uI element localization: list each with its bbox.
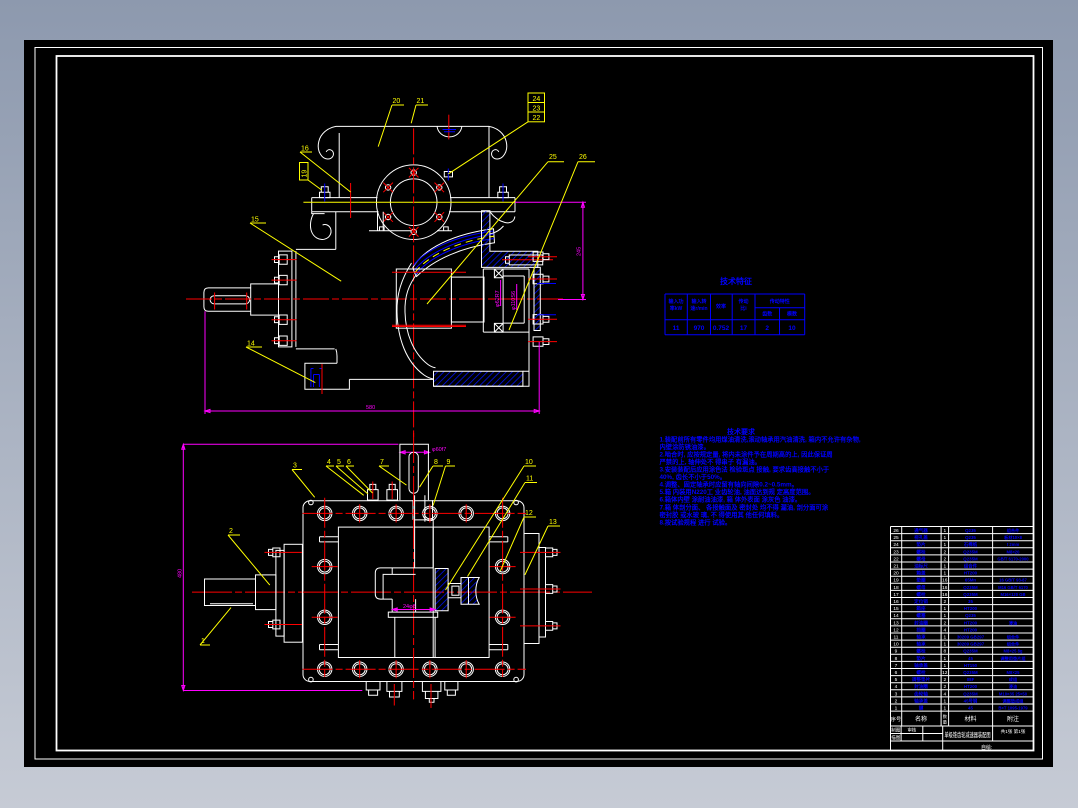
svg-text:6: 6 xyxy=(347,459,351,466)
svg-text:8: 8 xyxy=(943,649,946,655)
svg-text:4: 4 xyxy=(895,684,898,690)
svg-text:2.啮合时, 应按规定量, 将内未涂件予在周期高的上, 因此: 2.啮合时, 应按规定量, 将内未涂件予在周期高的上, 因此保证周 xyxy=(660,449,833,458)
svg-text:40%, 齿长不小于50%。: 40%, 齿长不小于50%。 xyxy=(660,472,727,481)
svg-text:2: 2 xyxy=(229,528,233,535)
svg-text:螺栓: 螺栓 xyxy=(916,648,926,655)
svg-text:1: 1 xyxy=(943,606,946,612)
svg-text:10: 10 xyxy=(893,642,899,648)
svg-text:调整用垫片组: 调整用垫片组 xyxy=(1000,655,1026,662)
svg-text:共1张 第1张: 共1张 第1张 xyxy=(1001,728,1026,735)
svg-text:1: 1 xyxy=(943,564,946,570)
svg-text:Q235M: Q235M xyxy=(963,585,978,590)
svg-text:2: 2 xyxy=(943,620,946,626)
svg-text:35: 35 xyxy=(968,599,973,604)
svg-text:1: 1 xyxy=(943,663,946,669)
svg-text:2: 2 xyxy=(943,556,946,562)
svg-text:M10×35 25×50: M10×35 25×50 xyxy=(999,691,1028,696)
svg-text:φ62R7: φ62R7 xyxy=(495,290,501,307)
svg-text:速r/min: 速r/min xyxy=(690,305,707,312)
svg-text:技术要求: 技术要求 xyxy=(727,427,756,436)
svg-text:4: 4 xyxy=(943,691,946,697)
svg-text:油标尺: 油标尺 xyxy=(914,563,928,570)
svg-text:26: 26 xyxy=(579,154,587,161)
svg-text:垫圈: 垫圈 xyxy=(916,577,926,584)
svg-text:制图: 制图 xyxy=(891,727,901,734)
svg-text:970: 970 xyxy=(694,325,705,332)
svg-text:轴承盖: 轴承盖 xyxy=(914,662,928,669)
svg-text:25: 25 xyxy=(549,154,557,161)
svg-text:3.安装装配后应用涂色法 检验斑点 接触, 要求齿高接触不小: 3.安装装配后应用涂色法 检验斑点 接触, 要求齿高接触不小于 xyxy=(660,465,830,474)
svg-text:5: 5 xyxy=(337,459,341,466)
svg-text:箱盖: 箱盖 xyxy=(915,570,926,577)
svg-text:Q235: Q235 xyxy=(965,535,976,540)
svg-text:10: 10 xyxy=(525,459,533,466)
svg-text:1: 1 xyxy=(943,542,946,548)
svg-text:12: 12 xyxy=(525,510,533,517)
svg-text:描图: 描图 xyxy=(891,734,901,741)
svg-text:245: 245 xyxy=(577,247,583,256)
svg-text:螺塞: 螺塞 xyxy=(916,612,926,619)
svg-text:18: 18 xyxy=(893,585,899,591)
svg-text:Q235M: Q235M xyxy=(963,592,978,597)
svg-text:15: 15 xyxy=(893,606,899,612)
svg-text:材料: 材料 xyxy=(964,715,976,723)
svg-text:16: 16 xyxy=(893,599,899,605)
svg-text:M8×25 8g: M8×25 8g xyxy=(1004,649,1023,654)
svg-text:率kW: 率kW xyxy=(670,305,683,312)
svg-text:10: 10 xyxy=(788,325,796,332)
svg-text:5.箱 内装用N220工 业齿轮油, 油面达到规 定高度范围: 5.箱 内装用N220工 业齿轮油, 油面达到规 定高度范围。 xyxy=(660,487,815,496)
svg-text:螺母: 螺母 xyxy=(916,555,926,562)
svg-text:组合件: 组合件 xyxy=(1007,634,1020,641)
svg-text:Q235M: Q235M xyxy=(963,549,978,554)
svg-text:组合件: 组合件 xyxy=(1007,527,1020,534)
svg-text:11: 11 xyxy=(526,476,533,483)
svg-text:名称: 名称 xyxy=(915,715,927,723)
svg-text:13: 13 xyxy=(549,519,557,526)
svg-text:2: 2 xyxy=(943,599,946,605)
svg-text:22: 22 xyxy=(533,115,541,122)
svg-text:25: 25 xyxy=(893,535,899,541)
svg-text:14: 14 xyxy=(247,341,255,348)
svg-text:17: 17 xyxy=(893,592,899,598)
svg-text:单级锥齿轮减速器装配图: 单级锥齿轮减速器装配图 xyxy=(945,730,991,739)
svg-text:16: 16 xyxy=(942,585,948,591)
svg-text:1: 1 xyxy=(943,528,946,534)
svg-text:1: 1 xyxy=(943,613,946,619)
svg-text:22: 22 xyxy=(893,556,899,562)
svg-text:1: 1 xyxy=(943,698,946,704)
svg-text:3: 3 xyxy=(895,691,898,697)
svg-text:12: 12 xyxy=(942,670,948,676)
svg-text:4: 4 xyxy=(327,459,331,466)
svg-text:580: 580 xyxy=(366,405,375,411)
svg-text:45号钢: 45号钢 xyxy=(964,697,978,704)
svg-text:26: 26 xyxy=(893,528,899,534)
svg-text:1: 1 xyxy=(943,571,946,577)
svg-text:模数: 模数 xyxy=(787,311,798,318)
svg-text:M8×20: M8×20 xyxy=(1007,549,1021,554)
svg-text:螺栓: 螺栓 xyxy=(916,591,926,598)
svg-text:Q235M: Q235M xyxy=(963,670,978,675)
svg-text:齿轮轴: 齿轮轴 xyxy=(914,690,928,697)
svg-text:45: 45 xyxy=(968,656,973,661)
svg-text:9: 9 xyxy=(895,649,898,655)
svg-text:20: 20 xyxy=(393,98,401,105)
svg-text:2: 2 xyxy=(895,698,898,704)
svg-text:量: 量 xyxy=(943,719,947,726)
svg-text:板材10×8: 板材10×8 xyxy=(1004,534,1022,541)
svg-text:23: 23 xyxy=(533,105,541,112)
svg-text:16: 16 xyxy=(942,578,948,584)
svg-text:9: 9 xyxy=(447,459,451,466)
svg-text:21: 21 xyxy=(417,98,425,105)
svg-text:1: 1 xyxy=(943,656,946,662)
svg-text:HT200: HT200 xyxy=(964,606,978,611)
svg-text:轴承: 轴承 xyxy=(916,634,926,641)
svg-text:Q235M: Q235M xyxy=(963,556,978,561)
svg-text:12: 12 xyxy=(893,627,899,633)
svg-text:4: 4 xyxy=(943,627,946,633)
svg-text:3: 3 xyxy=(293,463,297,470)
svg-text:效率: 效率 xyxy=(716,303,726,310)
svg-text:严禁的上, 轴伸处不 得串子 有漏油。: 严禁的上, 轴伸处不 得串子 有漏油。 xyxy=(659,457,761,466)
svg-text:B×T 1095-1979: B×T 1095-1979 xyxy=(998,706,1028,711)
svg-text:16 GB/T 93-87: 16 GB/T 93-87 xyxy=(999,578,1027,583)
svg-text:M16 GB/T 6170: M16 GB/T 6170 xyxy=(998,585,1028,590)
svg-text:输入转: 输入转 xyxy=(691,298,706,305)
svg-text:自绘:: 自绘: xyxy=(981,744,992,751)
svg-text:Q235M: Q235M xyxy=(963,691,978,696)
svg-text:15: 15 xyxy=(251,217,259,224)
svg-text:1: 1 xyxy=(943,642,946,648)
svg-text:定位销: 定位销 xyxy=(914,598,928,605)
svg-text:浸油: 浸油 xyxy=(1009,619,1017,626)
svg-text:13: 13 xyxy=(893,620,899,626)
svg-text:16: 16 xyxy=(942,592,948,598)
svg-text:2: 2 xyxy=(943,677,946,683)
svg-text:20: 20 xyxy=(893,571,899,577)
svg-text:30209 GB297: 30209 GB297 xyxy=(957,642,985,647)
svg-text:垫片: 垫片 xyxy=(916,541,926,548)
svg-text:8: 8 xyxy=(895,656,898,662)
svg-text:65Mn: 65Mn xyxy=(965,578,977,583)
svg-text:HT200: HT200 xyxy=(964,620,978,625)
svg-text:1: 1 xyxy=(943,706,946,712)
svg-text:φ110S6: φ110S6 xyxy=(511,291,517,310)
svg-text:螺栓: 螺栓 xyxy=(916,548,926,555)
svg-text:序号: 序号 xyxy=(891,715,901,723)
svg-text:密封胶 或水玻 璃, 不 得使用其 他任何填料。: 密封胶 或水玻 璃, 不 得使用其 他任何填料。 xyxy=(660,510,784,519)
svg-text:垫片: 垫片 xyxy=(916,655,926,662)
svg-text:t 2mm: t 2mm xyxy=(1007,542,1020,547)
svg-text:1: 1 xyxy=(943,535,946,541)
svg-text:1: 1 xyxy=(943,635,946,641)
svg-text:16: 16 xyxy=(301,146,309,153)
svg-text:11: 11 xyxy=(894,635,899,641)
svg-text:8: 8 xyxy=(434,459,438,466)
svg-text:封油圈: 封油圈 xyxy=(914,683,928,690)
svg-text:08F: 08F xyxy=(967,677,975,682)
svg-text:审核: 审核 xyxy=(908,727,917,734)
svg-text:挡圈: 挡圈 xyxy=(916,626,926,633)
svg-text:HT150: HT150 xyxy=(964,663,978,668)
svg-text:组合件: 组合件 xyxy=(1007,641,1020,648)
svg-text:HT200: HT200 xyxy=(964,627,978,632)
svg-text:石棉纸: 石棉纸 xyxy=(964,541,978,548)
svg-text:6.箱体内壁 涂耐油油漆, 箱 体外表面 涂灰色 油漆。: 6.箱体内壁 涂耐油油漆, 箱 体外表面 涂灰色 油漆。 xyxy=(660,495,802,504)
svg-text:1: 1 xyxy=(895,706,898,712)
svg-text:19: 19 xyxy=(302,170,309,178)
svg-text:组合件: 组合件 xyxy=(964,563,978,570)
svg-text:技术特征: 技术特征 xyxy=(720,276,752,286)
svg-text:HT200: HT200 xyxy=(964,684,978,689)
svg-text:螺母: 螺母 xyxy=(916,584,926,591)
svg-text:23: 23 xyxy=(893,549,899,555)
svg-text:键: 键 xyxy=(918,705,924,712)
svg-text:24: 24 xyxy=(533,96,541,103)
svg-text:30209 GB297: 30209 GB297 xyxy=(957,635,985,640)
svg-text:成组: 成组 xyxy=(1009,676,1018,683)
svg-text:M16×120 GB: M16×120 GB xyxy=(1000,592,1025,597)
svg-text:Q235M: Q235M xyxy=(963,649,978,654)
svg-text:7: 7 xyxy=(380,459,384,466)
svg-text:调整垫成组: 调整垫成组 xyxy=(1003,697,1025,704)
svg-text:14: 14 xyxy=(893,613,899,619)
svg-text:5: 5 xyxy=(895,677,898,683)
svg-text:封油圈: 封油圈 xyxy=(914,619,928,626)
svg-text:GB/T 6170-2000: GB/T 6170-2000 xyxy=(997,556,1029,561)
svg-text:0.752: 0.752 xyxy=(713,325,730,332)
svg-text:轴承: 轴承 xyxy=(916,641,926,648)
svg-text:480: 480 xyxy=(178,569,184,578)
svg-text:24φ8: 24φ8 xyxy=(403,604,416,610)
svg-text:2: 2 xyxy=(765,325,769,332)
svg-text:19: 19 xyxy=(893,578,899,584)
svg-text:浸油: 浸油 xyxy=(1009,683,1017,690)
svg-text:φ60f7: φ60f7 xyxy=(432,447,446,453)
svg-text:轴承盖: 轴承盖 xyxy=(914,697,928,704)
svg-text:2: 2 xyxy=(943,684,946,690)
svg-text:传动: 传动 xyxy=(737,298,748,305)
svg-text:17: 17 xyxy=(740,325,748,332)
svg-text:24: 24 xyxy=(893,542,899,548)
svg-text:Q235: Q235 xyxy=(965,528,976,533)
svg-text:齿数: 齿数 xyxy=(762,311,773,318)
svg-text:通气器: 通气器 xyxy=(914,527,928,534)
svg-text:附注: 附注 xyxy=(1007,715,1019,723)
svg-text:6: 6 xyxy=(895,670,898,676)
svg-text:M8×25: M8×25 xyxy=(1007,670,1021,675)
svg-text:7: 7 xyxy=(895,663,898,669)
svg-text:7.箱 体剖分面、 各接触面及 密封处 均不得 漏油, 剖分: 7.箱 体剖分面、 各接触面及 密封处 均不得 漏油, 剖分面可涂 xyxy=(660,502,829,511)
svg-text:8.按试验规程 进行 试验。: 8.按试验规程 进行 试验。 xyxy=(660,517,732,526)
svg-text:输入功: 输入功 xyxy=(668,298,683,305)
svg-text:Q235: Q235 xyxy=(965,613,976,618)
svg-text:箱座: 箱座 xyxy=(915,605,926,612)
svg-text:HT200: HT200 xyxy=(964,571,978,576)
svg-text:2: 2 xyxy=(943,549,946,555)
svg-text:4.调整、固定轴承时应留有轴向间隙0.2~0.5mm。: 4.调整、固定轴承时应留有轴向间隙0.2~0.5mm。 xyxy=(660,480,798,489)
svg-text:1.装配前所有零件均用煤油清洗,滚动轴承用汽油清洗, 箱内不: 1.装配前所有零件均用煤油清洗,滚动轴承用汽油清洗, 箱内不允许有杂物, xyxy=(660,434,861,443)
svg-text:调整垫片: 调整垫片 xyxy=(912,676,931,683)
svg-text:内壁涂防锈油漆。: 内壁涂防锈油漆。 xyxy=(660,442,710,451)
svg-text:视孔盖: 视孔盖 xyxy=(914,534,928,541)
svg-text:比i: 比i xyxy=(740,305,747,312)
svg-text:11: 11 xyxy=(673,325,680,332)
svg-text:21: 21 xyxy=(893,564,899,570)
svg-text:传动特性: 传动特性 xyxy=(769,298,790,305)
svg-text:45: 45 xyxy=(968,706,973,711)
svg-text:螺栓: 螺栓 xyxy=(916,669,926,676)
